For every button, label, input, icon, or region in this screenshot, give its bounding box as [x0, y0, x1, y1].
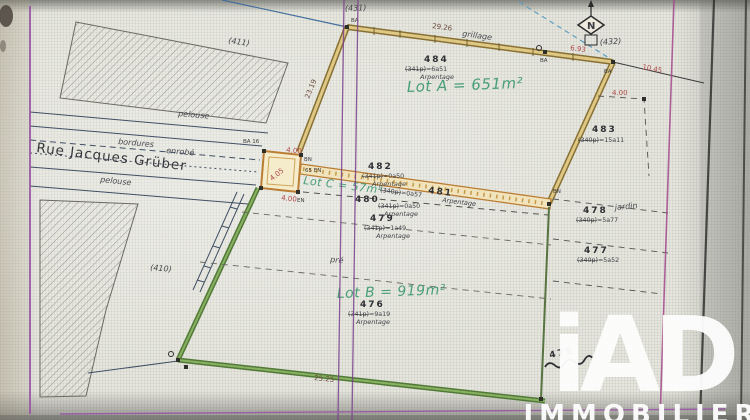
parcel-484-record: (341p)=6a51 [405, 66, 447, 73]
parcel-482-area: =0a50 [383, 173, 404, 180]
marker-bn: BN [304, 157, 312, 163]
parcel-481-old: (340p) [380, 187, 402, 196]
parcel-479-old: (341p) [364, 225, 385, 232]
south-boundary-line [88, 361, 178, 373]
measure-23-19: 23.19 [303, 78, 318, 100]
bottom-edge-shade [0, 415, 750, 420]
buildings [40, 22, 288, 397]
marker-bn-east: BN [553, 189, 561, 195]
parcel-479-note: Arpentage [375, 232, 410, 240]
measure-4-00-right: 4.00 [612, 89, 628, 97]
photo-smudge-small [0, 40, 6, 52]
photo-line-bottom-purple [60, 409, 725, 414]
hatched-building-south [40, 200, 138, 397]
parcel-480-number: 480 [355, 195, 380, 205]
parcel-labels: 484 (341p)=6a51 Arpentage 483 (340p)=15a… [348, 55, 624, 370]
photo-of-survey-plan: N (431) (432) (411) (410) Rue Jacques Gr… [0, 0, 750, 420]
context-parcel-431: (431) [345, 3, 367, 13]
parcel-482-record: (341p)=0a50 [362, 173, 404, 180]
measure-bottom-25-25: 25.25 [314, 374, 335, 384]
parcel-480-record: (341p)=0a50 [378, 203, 420, 210]
parcel-477-area: =5a52 [598, 257, 619, 264]
surface-pelouse-top: pelouse [177, 109, 210, 121]
measure-6-93: 6.93 [570, 44, 587, 54]
parcel-483-record: (340p)=15a11 [578, 137, 624, 144]
parcel-476-note: Arpentage [355, 318, 390, 326]
surface-jardin: jardin [613, 201, 637, 212]
measure-square-bottom: 4.00 [281, 194, 297, 204]
parcel-484-old: (341p) [405, 66, 426, 73]
parcel-476-old: (341p) [348, 311, 369, 318]
parcel-477-record: (340p)=5a52 [577, 257, 619, 264]
parcel-480-area: =0a50 [399, 203, 420, 210]
marker-ba16: BA 16 [243, 139, 260, 145]
parcel-480-old: (341p) [378, 203, 399, 210]
parcel-478-record: (340p)=5a77 [576, 217, 618, 224]
street-edge-line [30, 167, 256, 185]
marker-en: EN [297, 198, 305, 204]
photo-line-magenta [660, 0, 674, 420]
parcel-481-area: =0a57 [401, 190, 423, 200]
parcel-476-number: 476 [360, 300, 385, 310]
photo-line-purple-2 [352, 0, 358, 420]
parcel-478-old: (340p) [576, 217, 597, 224]
parcel-482-old: (341p) [362, 173, 383, 180]
blue-line-nw [222, 0, 347, 27]
measure-10-45: 10.45 [642, 63, 663, 75]
surface-pre: pré [329, 254, 344, 265]
measure-top-fence: 29.26 [432, 22, 453, 33]
parcel-476-record: (341p)=9a19 [348, 311, 390, 318]
parcel-484-note: Arpentage [419, 73, 454, 81]
parcel-475-number: 475 [549, 346, 575, 361]
surface-bordures: bordures [118, 137, 154, 149]
context-parcel-410: (410) [150, 263, 172, 274]
marker-ba-mid: BA [540, 58, 548, 64]
surface-pelouse-bottom: pelouse [99, 175, 132, 187]
parcel-479-record: (341p)=1a49 [364, 225, 406, 232]
marker-ba-ne: BA [604, 69, 612, 75]
parcel-483-number: 483 [592, 125, 617, 135]
parcel-482-number: 482 [368, 162, 393, 172]
lot-b-label: Lot B = 919m² [337, 282, 447, 302]
measure-square-top: 4.00 [286, 146, 302, 156]
lot-b-east-boundary [541, 207, 549, 399]
context-parcel-432: (432) [600, 37, 622, 47]
survey-plan-drawing: N (431) (432) (411) (410) Rue Jacques Gr… [0, 0, 750, 420]
parcel-479-area: =1a49 [385, 225, 406, 232]
parcel-478-area: =5a77 [597, 217, 618, 224]
north-letter: N [587, 21, 595, 32]
parcel-477-old: (340p) [577, 257, 598, 264]
parcel-484-number: 484 [424, 55, 449, 65]
parcel-483-old: (340p) [578, 137, 599, 144]
parcel-478-number: 478 [583, 206, 608, 216]
parcel-482-note: Arpentage [371, 180, 406, 188]
context-parcel-411: (411) [228, 36, 251, 48]
parcel-477-number: 477 [584, 246, 609, 256]
hatched-building-north [60, 22, 288, 123]
photo-line-purple-1 [338, 0, 344, 420]
marker-65-en: 65 EN [305, 168, 321, 174]
parcel-476-area: =9a19 [369, 311, 390, 318]
left-margin [0, 0, 30, 420]
parcel-484-area: =6a51 [426, 66, 447, 73]
parcel-479-number: 479 [370, 214, 395, 224]
parcel-483-area: =15a11 [599, 137, 624, 144]
